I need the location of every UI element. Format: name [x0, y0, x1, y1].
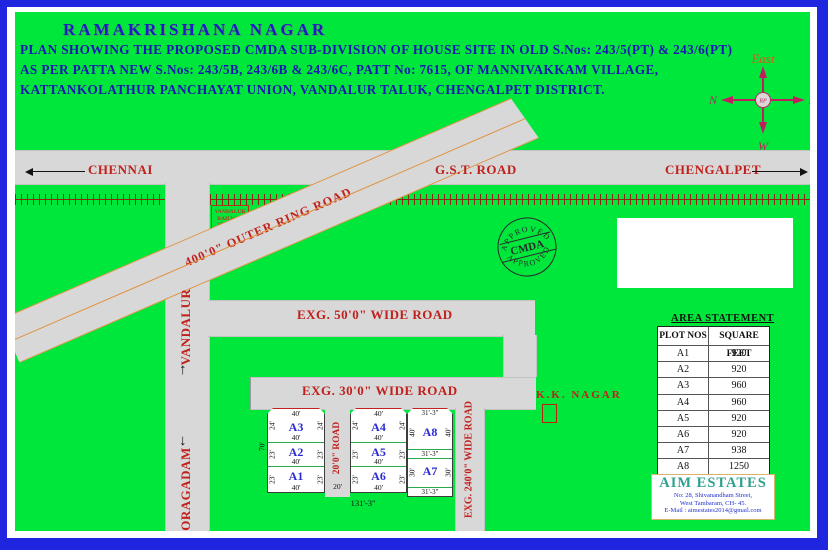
plot-a8-label: A8 — [408, 425, 452, 440]
wide240-road-label: EXG. 240'0" WIDE ROAD — [464, 395, 475, 525]
arrow-left-icon — [25, 168, 33, 176]
plot-no-cell: A1 — [658, 346, 709, 361]
area-statement-title: AREA STATEMENT — [671, 313, 774, 324]
company-address1: No: 28, Shivanandham Street, — [652, 492, 774, 500]
sqft-cell: 920 — [709, 362, 769, 377]
table-row: A3960 — [658, 377, 769, 393]
company-card: AIM ESTATES No: 28, Shivanandham Street,… — [651, 474, 775, 520]
area-statement-table: PLOT NOS SQUARE FEET A1920 A2920 A3960 A… — [657, 326, 770, 476]
company-name: AIM ESTATES — [652, 475, 774, 492]
plot-a8-top-dim: 31'-3" — [408, 409, 452, 417]
plot-a4-bottom-dim: 40' — [351, 434, 406, 442]
table-row: A5920 — [658, 410, 769, 426]
plan-description-line1: PLAN SHOWING THE PROPOSED CMDA SUB-DIVIS… — [20, 42, 732, 58]
plot-a6: A6 40' 23' 23' — [351, 467, 406, 492]
table-row: A4960 — [658, 394, 769, 410]
plot-a4-top-dim: 40' — [351, 409, 406, 418]
compass-west-label: W — [758, 139, 769, 153]
sqft-cell: 920 — [709, 427, 769, 442]
page-title: RAMAKRISHANA NAGAR — [63, 20, 327, 40]
plot-a8: A8 40' 40' — [408, 417, 452, 450]
plot-a5-label: A5 — [351, 445, 406, 460]
kk-nagar-label: K.K. NAGAR — [536, 389, 622, 401]
plot-a4-label: A4 — [351, 420, 406, 435]
plot-block-bottom-total-dim: 131'-3" — [323, 498, 403, 508]
compass-center-label: RP — [758, 99, 767, 105]
plot-group-far-right: 31'-3" A8 40' 40' 31'-3" A7 30' 30' 31'-… — [407, 408, 453, 497]
chengalpet-label: CHENGALPET — [665, 162, 761, 178]
compass-rose-icon: RP East N S W — [705, 52, 810, 157]
plot-no-cell: A7 — [658, 443, 709, 458]
table-row: A6920 — [658, 426, 769, 442]
plan-description-line2: AS PER PATTA NEW S.Nos: 243/5B, 243/6B &… — [20, 62, 658, 78]
plot-block-left-total-dim: 70' — [258, 437, 267, 457]
plot-a7: A7 30' 30' — [408, 459, 452, 487]
plot-no-cell: A4 — [658, 395, 709, 410]
oragadam-direction-label: ORAGADAM — [178, 445, 194, 531]
plot-a7-bottom-dim: 31'-3" — [408, 487, 452, 497]
compass-south-label: S — [809, 93, 810, 107]
plot-a1: A1 40' 23' 23' — [268, 467, 324, 492]
vandalur-direction-label: VANDALUR — [178, 282, 194, 372]
plot-no-cell: A3 — [658, 378, 709, 393]
plot-a4: 40' A4 40' 24' 24' — [351, 409, 406, 443]
plan-canvas: RAMAKRISHANA NAGAR PLAN SHOWING THE PROP… — [15, 12, 810, 531]
plot-no-cell: A5 — [658, 411, 709, 426]
plot-a7-label: A7 — [408, 464, 452, 479]
plot-group-right: 40' A4 40' 24' 24' A5 40' 23' 23' A6 40'… — [350, 408, 407, 493]
sqft-cell: 938 — [709, 443, 769, 458]
plan-description-line3: KATTANKOLATHUR PANCHAYAT UNION, VANDALUR… — [20, 82, 605, 98]
kk-nagar-marker — [542, 404, 557, 423]
plot-no-cell: A8 — [658, 459, 709, 474]
plot-a3-top-dim: 40' — [268, 409, 324, 418]
arrow-right-icon — [800, 168, 808, 176]
plot-group-left: 40' A3 40' 24' 24' A2 40' 23' 23' A1 40'… — [267, 408, 325, 493]
table-row: A81250 — [658, 458, 769, 474]
wide50-road-label: EXG. 50'0" WIDE ROAD — [297, 307, 453, 323]
blank-title-box — [617, 218, 793, 288]
plot-a2: A2 40' 23' 23' — [268, 443, 324, 467]
wide240-road-upper — [503, 335, 537, 377]
company-address2: West Tambaram, CH- 45. — [652, 500, 774, 508]
railway-track — [378, 194, 810, 205]
table-row: A7938 — [658, 442, 769, 458]
chengalpet-arrow-line — [752, 171, 800, 172]
gst-road-label: G.S.T. ROAD — [435, 162, 517, 178]
col-square-feet: SQUARE FEET — [709, 327, 769, 345]
plot-a2-label: A2 — [268, 445, 324, 460]
compass-east-label: East — [750, 52, 775, 66]
chennai-arrow-line — [33, 171, 85, 172]
plot-no-cell: A6 — [658, 427, 709, 442]
sqft-cell: 960 — [709, 378, 769, 393]
sqft-cell: 1250 — [709, 459, 769, 474]
road20-label: 20'0" ROAD — [332, 419, 342, 477]
col-plot-nos: PLOT NOS — [658, 327, 709, 345]
wide30-road-label: EXG. 30'0" WIDE ROAD — [302, 383, 458, 399]
sqft-cell: 960 — [709, 395, 769, 410]
plot-a6-label: A6 — [351, 469, 406, 484]
plot-no-cell: A2 — [658, 362, 709, 377]
chennai-label: CHENNAI — [88, 162, 153, 178]
plot-a3-label: A3 — [268, 420, 324, 435]
sqft-cell: 920 — [709, 411, 769, 426]
table-row: A1920 — [658, 345, 769, 361]
cmda-approved-stamp-icon: APPROVED CMDA APPROVED — [488, 208, 566, 286]
table-header-row: PLOT NOS SQUARE FEET — [658, 327, 769, 345]
road20-dim: 20' — [325, 482, 350, 491]
plot-a1-label: A1 — [268, 469, 324, 484]
arrow-up-icon: ↑ — [179, 362, 187, 379]
plot-a3-bottom-dim: 40' — [268, 434, 324, 442]
railway-track — [15, 194, 165, 205]
plot-a3: 40' A3 40' 24' 24' — [268, 409, 324, 443]
plan-sheet: { "header": { "title": "RAMAKRISHANA NAG… — [0, 0, 828, 550]
sqft-cell: 920 — [709, 346, 769, 361]
compass-north-label: N — [708, 93, 718, 107]
company-email: E-Mail : aimestates2014@gmail.com — [652, 507, 774, 515]
plot-a5: A5 40' 23' 23' — [351, 443, 406, 467]
plot-a8-a7-divider-dim: 31'-3" — [408, 450, 452, 459]
table-row: A2920 — [658, 361, 769, 377]
